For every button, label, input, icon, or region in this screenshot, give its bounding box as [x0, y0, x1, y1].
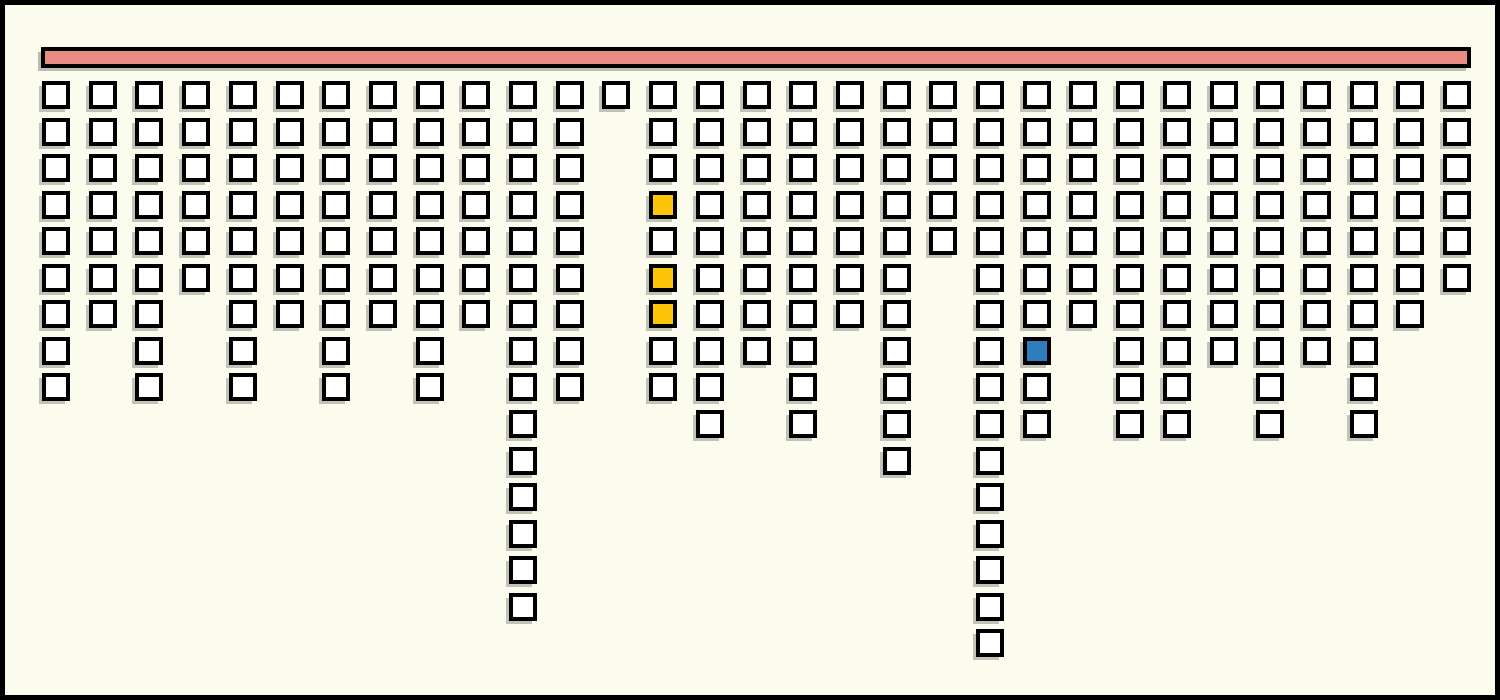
grid-square — [89, 300, 117, 328]
grid-square — [1116, 300, 1144, 328]
grid-square — [42, 118, 70, 146]
grid-square — [789, 410, 817, 438]
grid-square — [462, 81, 490, 109]
grid-square — [743, 154, 771, 182]
grid-square — [135, 154, 163, 182]
grid-square — [976, 629, 1004, 657]
grid-square — [276, 81, 304, 109]
grid-square — [1396, 300, 1424, 328]
grid-square — [1116, 227, 1144, 255]
grid-square — [369, 264, 397, 292]
grid-square — [743, 264, 771, 292]
grid-square — [509, 556, 537, 584]
grid-square — [976, 556, 1004, 584]
grid-square — [1023, 227, 1051, 255]
grid-square — [1443, 81, 1471, 109]
grid-square — [976, 593, 1004, 621]
grid-square — [1163, 191, 1191, 219]
grid-square — [229, 118, 257, 146]
grid-square — [929, 118, 957, 146]
grid-square — [509, 191, 537, 219]
grid-square — [322, 118, 350, 146]
grid-square — [369, 191, 397, 219]
grid-square — [976, 373, 1004, 401]
grid-square — [135, 118, 163, 146]
grid-square — [883, 337, 911, 365]
grid-square — [1163, 373, 1191, 401]
grid-square — [1443, 191, 1471, 219]
grid-square — [1023, 118, 1051, 146]
grid-square — [929, 81, 957, 109]
grid-square — [789, 191, 817, 219]
grid-square — [1069, 191, 1097, 219]
grid-square — [322, 264, 350, 292]
grid-square — [1116, 118, 1144, 146]
grid-square — [462, 264, 490, 292]
grid-square — [1116, 337, 1144, 365]
grid-square — [322, 337, 350, 365]
grid-square — [556, 227, 584, 255]
grid-square — [509, 118, 537, 146]
grid-square — [556, 337, 584, 365]
grid-square — [1069, 264, 1097, 292]
grid-square — [229, 81, 257, 109]
grid-square — [929, 154, 957, 182]
grid-square — [556, 81, 584, 109]
grid-square — [696, 191, 724, 219]
grid-square — [135, 264, 163, 292]
grid-square — [556, 300, 584, 328]
grid-square — [789, 227, 817, 255]
grid-square — [883, 447, 911, 475]
grid-square — [509, 227, 537, 255]
grid-square — [135, 81, 163, 109]
grid-square — [229, 337, 257, 365]
grid-square — [1396, 227, 1424, 255]
grid-square — [1116, 373, 1144, 401]
grid-square — [1023, 154, 1051, 182]
grid-square — [883, 410, 911, 438]
grid-square — [89, 81, 117, 109]
grid-square — [1210, 227, 1238, 255]
grid-square — [1350, 373, 1378, 401]
grid-square — [135, 373, 163, 401]
grid-square — [1350, 300, 1378, 328]
grid-square — [1350, 227, 1378, 255]
grid-square — [42, 300, 70, 328]
grid-square — [135, 337, 163, 365]
grid-square — [322, 227, 350, 255]
grid-square — [276, 300, 304, 328]
grid-square — [1303, 191, 1331, 219]
grid-square — [883, 81, 911, 109]
grid-square — [416, 300, 444, 328]
grid-square — [883, 118, 911, 146]
grid-square — [276, 118, 304, 146]
grid-square — [1396, 154, 1424, 182]
grid-square — [696, 227, 724, 255]
grid-square — [1163, 410, 1191, 438]
grid-square — [1116, 81, 1144, 109]
grid-square — [836, 300, 864, 328]
grid-square — [229, 264, 257, 292]
grid-square — [1023, 191, 1051, 219]
grid-square — [976, 81, 1004, 109]
grid-square — [1256, 118, 1284, 146]
grid-square — [789, 118, 817, 146]
grid-square — [1256, 410, 1284, 438]
grid-square — [976, 447, 1004, 475]
grid-square — [229, 227, 257, 255]
grid-square — [976, 191, 1004, 219]
grid-square — [1023, 373, 1051, 401]
grid-square — [509, 483, 537, 511]
grid-square — [1116, 154, 1144, 182]
squares-grid — [5, 5, 1495, 695]
grid-square — [743, 81, 771, 109]
grid-square — [556, 264, 584, 292]
grid-square — [1256, 264, 1284, 292]
grid-square — [1256, 227, 1284, 255]
grid-square — [1163, 118, 1191, 146]
grid-square — [929, 227, 957, 255]
grid-square — [1210, 81, 1238, 109]
grid-square — [89, 227, 117, 255]
grid-square-yellow — [649, 300, 677, 328]
grid-square — [1023, 300, 1051, 328]
grid-square — [416, 337, 444, 365]
grid-square — [1163, 81, 1191, 109]
grid-square — [696, 264, 724, 292]
grid-square — [182, 81, 210, 109]
grid-square — [369, 118, 397, 146]
grid-square — [42, 337, 70, 365]
grid-square — [89, 264, 117, 292]
grid-square — [182, 227, 210, 255]
grid-square — [556, 191, 584, 219]
grid-square — [836, 191, 864, 219]
grid-square — [1443, 154, 1471, 182]
grid-square — [322, 191, 350, 219]
grid-square — [462, 191, 490, 219]
grid-square — [1350, 81, 1378, 109]
grid-square — [556, 373, 584, 401]
grid-square — [182, 264, 210, 292]
grid-square-yellow — [649, 264, 677, 292]
grid-square — [1303, 300, 1331, 328]
grid-square — [509, 300, 537, 328]
grid-square — [1303, 337, 1331, 365]
grid-square — [976, 300, 1004, 328]
grid-square — [135, 191, 163, 219]
grid-square — [1116, 191, 1144, 219]
grid-square — [229, 191, 257, 219]
grid-square — [416, 191, 444, 219]
grid-square — [1163, 154, 1191, 182]
grid-square — [322, 373, 350, 401]
grid-square — [1023, 264, 1051, 292]
grid-square — [743, 337, 771, 365]
grid-square — [556, 154, 584, 182]
grid-square — [416, 264, 444, 292]
grid-square — [1210, 118, 1238, 146]
grid-square — [976, 118, 1004, 146]
grid-square — [1256, 300, 1284, 328]
grid-square — [1256, 191, 1284, 219]
grid-square — [836, 81, 864, 109]
grid-square — [1350, 264, 1378, 292]
grid-square — [696, 300, 724, 328]
grid-square — [229, 373, 257, 401]
grid-square — [789, 154, 817, 182]
grid-square — [1069, 154, 1097, 182]
grid-square — [89, 191, 117, 219]
grid-square — [276, 154, 304, 182]
grid-square — [1163, 264, 1191, 292]
grid-square — [509, 373, 537, 401]
grid-square — [89, 154, 117, 182]
grid-square — [509, 154, 537, 182]
grid-square — [743, 118, 771, 146]
grid-square — [509, 593, 537, 621]
grid-square — [369, 227, 397, 255]
grid-square — [509, 81, 537, 109]
grid-square — [696, 410, 724, 438]
grid-square — [976, 227, 1004, 255]
grid-square — [1396, 81, 1424, 109]
grid-square — [883, 191, 911, 219]
grid-square — [89, 118, 117, 146]
grid-square — [556, 118, 584, 146]
grid-square — [696, 337, 724, 365]
grid-square — [1210, 300, 1238, 328]
grid-square — [1163, 337, 1191, 365]
grid-square — [1396, 191, 1424, 219]
grid-square — [883, 264, 911, 292]
grid-square — [369, 300, 397, 328]
grid-square — [649, 373, 677, 401]
grid-square — [976, 154, 1004, 182]
grid-square — [42, 81, 70, 109]
grid-square — [696, 81, 724, 109]
grid-square — [1303, 118, 1331, 146]
grid-square — [649, 154, 677, 182]
grid-square — [649, 227, 677, 255]
grid-square — [276, 191, 304, 219]
grid-square — [1069, 81, 1097, 109]
grid-square — [789, 264, 817, 292]
grid-square — [135, 227, 163, 255]
grid-square — [509, 264, 537, 292]
grid-square — [789, 300, 817, 328]
grid-square — [1069, 118, 1097, 146]
grid-square — [229, 300, 257, 328]
grid-square — [743, 300, 771, 328]
canvas-frame — [0, 0, 1500, 700]
grid-square — [696, 154, 724, 182]
grid-square — [42, 373, 70, 401]
grid-square — [416, 154, 444, 182]
grid-square — [509, 337, 537, 365]
grid-square — [322, 154, 350, 182]
grid-square — [416, 118, 444, 146]
grid-square — [416, 81, 444, 109]
grid-square — [1443, 118, 1471, 146]
grid-square — [1396, 264, 1424, 292]
grid-square — [182, 191, 210, 219]
grid-square — [1350, 410, 1378, 438]
grid-square — [1163, 227, 1191, 255]
grid-square — [1350, 337, 1378, 365]
grid-square — [976, 483, 1004, 511]
grid-square — [462, 300, 490, 328]
grid-square — [836, 154, 864, 182]
grid-square — [836, 264, 864, 292]
grid-square — [1256, 337, 1284, 365]
grid-square-yellow — [649, 191, 677, 219]
grid-square — [416, 227, 444, 255]
grid-square — [1210, 191, 1238, 219]
grid-square — [649, 337, 677, 365]
grid-square — [789, 373, 817, 401]
grid-square — [416, 373, 444, 401]
grid-square — [135, 300, 163, 328]
grid-square — [1303, 81, 1331, 109]
grid-square — [976, 520, 1004, 548]
grid-square — [509, 520, 537, 548]
grid-square — [322, 300, 350, 328]
grid-square — [509, 410, 537, 438]
grid-square — [1116, 410, 1144, 438]
grid-square — [976, 410, 1004, 438]
grid-square — [1256, 373, 1284, 401]
grid-square — [462, 227, 490, 255]
grid-square — [883, 227, 911, 255]
grid-square — [1256, 154, 1284, 182]
grid-square — [1350, 154, 1378, 182]
grid-square — [1256, 81, 1284, 109]
grid-square — [182, 118, 210, 146]
grid-square — [976, 264, 1004, 292]
grid-square — [1396, 118, 1424, 146]
grid-square — [1210, 264, 1238, 292]
grid-square-blue — [1023, 337, 1051, 365]
grid-square — [276, 227, 304, 255]
grid-square — [42, 191, 70, 219]
grid-square — [1116, 264, 1144, 292]
grid-square — [42, 154, 70, 182]
grid-square — [883, 154, 911, 182]
grid-square — [836, 118, 864, 146]
grid-square — [1350, 191, 1378, 219]
grid-square — [649, 81, 677, 109]
grid-square — [1350, 118, 1378, 146]
grid-square — [1303, 264, 1331, 292]
grid-square — [602, 81, 630, 109]
grid-square — [1163, 300, 1191, 328]
grid-square — [1303, 227, 1331, 255]
grid-square — [976, 337, 1004, 365]
grid-square — [696, 118, 724, 146]
grid-square — [509, 447, 537, 475]
grid-square — [883, 300, 911, 328]
grid-square — [743, 227, 771, 255]
grid-square — [789, 81, 817, 109]
grid-square — [1023, 81, 1051, 109]
grid-square — [743, 191, 771, 219]
grid-square — [462, 118, 490, 146]
grid-square — [1210, 337, 1238, 365]
grid-square — [229, 154, 257, 182]
grid-square — [42, 264, 70, 292]
grid-square — [1443, 264, 1471, 292]
grid-square — [1069, 227, 1097, 255]
grid-square — [182, 154, 210, 182]
grid-square — [1069, 300, 1097, 328]
grid-square — [836, 227, 864, 255]
grid-square — [462, 154, 490, 182]
grid-square — [649, 118, 677, 146]
grid-square — [1210, 154, 1238, 182]
grid-square — [1303, 154, 1331, 182]
grid-square — [322, 81, 350, 109]
grid-square — [883, 373, 911, 401]
grid-square — [696, 373, 724, 401]
grid-square — [789, 337, 817, 365]
grid-square — [1023, 410, 1051, 438]
grid-square — [369, 154, 397, 182]
grid-square — [42, 227, 70, 255]
grid-square — [276, 264, 304, 292]
grid-square — [1443, 227, 1471, 255]
grid-square — [929, 191, 957, 219]
grid-square — [369, 81, 397, 109]
